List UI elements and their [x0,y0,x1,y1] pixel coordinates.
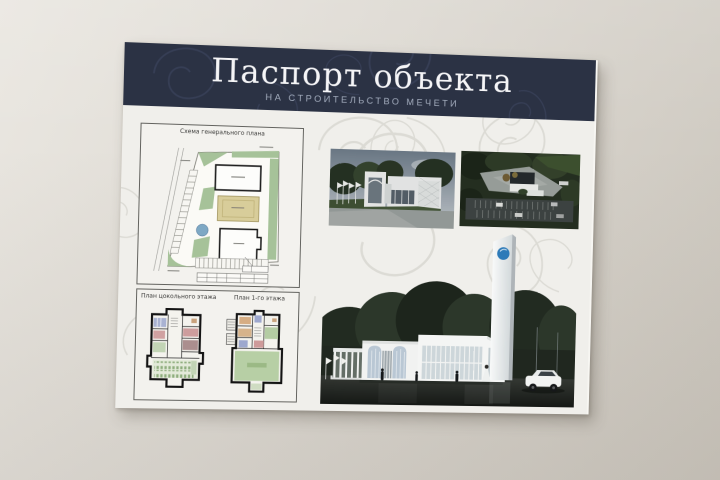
first-floor-plan: План 1-го этажа [221,291,294,402]
mosque-main-rendering [320,229,578,407]
site-plan-panel: Схема генерального плана [136,123,304,288]
minaret [490,234,517,381]
basement-plan-drawing [138,299,212,396]
floor-plans-panel: План цокольного этажа [133,288,299,402]
mosque-perspective-rendering [329,149,456,229]
site-plan-drawing [137,135,302,286]
photo-scene: Паспорт объекта НА СТРОИТЕЛЬСТВО МЕЧЕТИ … [0,0,720,480]
basement-plan: План цокольного этажа [138,289,216,401]
first-floor-plan-drawing [222,301,295,397]
object-passport-board: Паспорт объекта НА СТРОИТЕЛЬСТВО МЕЧЕТИ … [115,42,598,414]
mosque-aerial-rendering [459,151,580,229]
